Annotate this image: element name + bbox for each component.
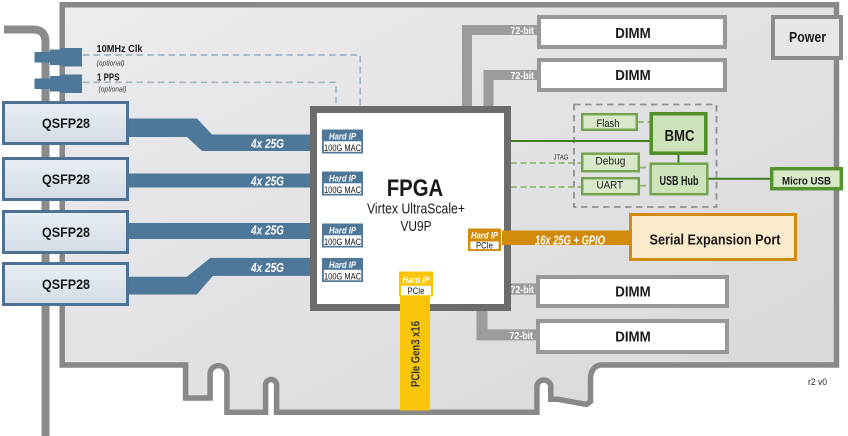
svg-text:Hard IP: Hard IP bbox=[329, 226, 357, 236]
svg-text:4x 25G: 4x 25G bbox=[250, 137, 284, 151]
svg-text:16x 25G + GPIO: 16x 25G + GPIO bbox=[535, 233, 605, 248]
svg-text:4x 25G: 4x 25G bbox=[250, 261, 284, 275]
svg-text:1 PPS: 1 PPS bbox=[97, 73, 120, 84]
svg-text:10MHz Clk: 10MHz Clk bbox=[97, 44, 143, 55]
svg-text:Micro USB: Micro USB bbox=[782, 176, 831, 188]
svg-text:Hard IP: Hard IP bbox=[403, 275, 431, 285]
svg-text:PCIe: PCIe bbox=[476, 240, 493, 251]
svg-text:FPGA: FPGA bbox=[387, 175, 444, 202]
svg-text:QSFP28: QSFP28 bbox=[42, 172, 90, 187]
svg-text:PCIe Gen3 x16: PCIe Gen3 x16 bbox=[411, 321, 423, 387]
svg-text:BMC: BMC bbox=[665, 128, 695, 145]
svg-text:4x 25G: 4x 25G bbox=[250, 224, 284, 238]
svg-text:Hard IP: Hard IP bbox=[329, 260, 357, 270]
svg-text:Power: Power bbox=[789, 30, 826, 46]
svg-text:72-bit: 72-bit bbox=[511, 71, 535, 82]
svg-text:72-bit: 72-bit bbox=[511, 285, 535, 296]
svg-text:72-bit: 72-bit bbox=[511, 26, 535, 37]
svg-text:Serial Expansion Port: Serial Expansion Port bbox=[650, 232, 781, 249]
svg-text:DIMM: DIMM bbox=[615, 285, 651, 301]
svg-text:r2 v0: r2 v0 bbox=[808, 376, 827, 387]
svg-text:DIMM: DIMM bbox=[615, 26, 651, 42]
svg-text:VU9P: VU9P bbox=[401, 219, 432, 235]
svg-text:JTAG: JTAG bbox=[554, 155, 569, 162]
svg-text:72-bit: 72-bit bbox=[510, 331, 534, 342]
svg-text:100G MAC: 100G MAC bbox=[324, 142, 361, 153]
svg-text:100G MAC: 100G MAC bbox=[324, 184, 361, 195]
svg-text:QSFP28: QSFP28 bbox=[42, 277, 90, 292]
svg-text:Debug: Debug bbox=[595, 156, 625, 168]
svg-text:Hard IP: Hard IP bbox=[329, 174, 357, 184]
svg-text:DIMM: DIMM bbox=[615, 68, 651, 84]
svg-text:(optional): (optional) bbox=[97, 61, 125, 68]
svg-text:UART: UART bbox=[597, 180, 624, 192]
svg-text:DIMM: DIMM bbox=[615, 330, 651, 346]
svg-text:4x 25G: 4x 25G bbox=[250, 175, 284, 189]
svg-text:100G MAC: 100G MAC bbox=[324, 270, 361, 281]
svg-text:100G MAC: 100G MAC bbox=[324, 236, 361, 247]
svg-text:Hard IP: Hard IP bbox=[329, 132, 357, 142]
svg-text:USB Hub: USB Hub bbox=[660, 173, 699, 188]
svg-text:QSFP28: QSFP28 bbox=[42, 116, 90, 131]
svg-text:Flash: Flash bbox=[597, 118, 620, 130]
svg-text:(optional): (optional) bbox=[99, 87, 127, 94]
svg-text:PCIe: PCIe bbox=[408, 285, 425, 296]
svg-text:QSFP28: QSFP28 bbox=[42, 225, 90, 240]
svg-text:Virtex UltraScale+: Virtex UltraScale+ bbox=[367, 202, 465, 218]
